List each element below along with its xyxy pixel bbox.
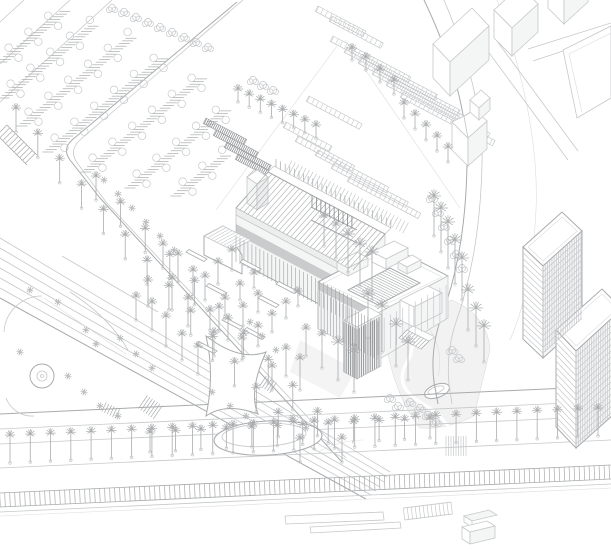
shrub (166, 28, 177, 36)
palm-tree (455, 251, 469, 301)
parking-row (125, 106, 232, 188)
fountain-mid (37, 371, 47, 381)
palm-tree (140, 223, 150, 253)
palm-tree (45, 428, 55, 462)
hatch-band (0, 465, 611, 507)
bench (206, 284, 227, 296)
site-plan-canvas (0, 0, 611, 550)
parking-row (43, 54, 170, 152)
palm-tree (238, 301, 248, 327)
palm-tree (281, 343, 291, 377)
road-topleft-2 (0, 0, 70, 64)
median-slab-2 (310, 522, 401, 533)
palm-tree (253, 289, 263, 313)
road-topleft-3 (0, 0, 112, 102)
palm-tree (244, 89, 254, 108)
star-tree (101, 177, 108, 184)
teardrop-island (206, 336, 266, 416)
south-small-building (462, 510, 497, 544)
palm-tree (451, 410, 461, 444)
palm-tree (76, 179, 86, 209)
palm-tree (233, 84, 243, 103)
hatch-band (403, 502, 452, 520)
palm-tree (300, 115, 310, 134)
palm-tree (532, 406, 542, 440)
shrub (106, 4, 117, 12)
palm-tree (471, 409, 481, 443)
palm-tree (142, 255, 152, 285)
palm-tree (374, 416, 384, 442)
palm-tree (106, 425, 116, 459)
median-slab-1 (285, 512, 384, 524)
shrub (247, 76, 258, 84)
boulevard-south-border-2 (0, 488, 611, 516)
palm-tree (193, 341, 203, 375)
east-lot (563, 26, 611, 118)
star-tree (27, 287, 34, 294)
block-c-face-r (564, 0, 588, 24)
palm-tree (281, 297, 291, 319)
planting-bed (283, 122, 332, 152)
palm-tree (432, 131, 442, 152)
star-tree (81, 389, 88, 396)
palm-tree (188, 265, 198, 297)
bench (222, 318, 243, 330)
palm-tree (131, 291, 141, 321)
palm-tree (126, 424, 136, 458)
palm-tree (288, 381, 298, 411)
shrub (426, 194, 437, 202)
shrub (267, 86, 278, 94)
shrub (142, 18, 153, 26)
palm-tree (145, 427, 155, 453)
palm-tree (120, 230, 130, 260)
shrub (202, 43, 213, 51)
fountain-outer (30, 364, 54, 388)
palm-tree (11, 103, 21, 133)
block-c-face-l (548, 0, 564, 24)
palm-tree (235, 279, 245, 301)
city-blocks (433, 0, 611, 544)
palm-tree (390, 412, 400, 446)
shrub (392, 402, 403, 410)
palm-tree (421, 120, 431, 141)
star-tree (83, 327, 90, 334)
palm-tree (370, 413, 380, 447)
palm-tree (161, 311, 171, 347)
star-tree (115, 413, 122, 420)
palm-tree (289, 110, 299, 129)
star-tree (157, 233, 164, 240)
palm-tree (410, 411, 420, 445)
palm-tree (410, 109, 420, 130)
palm-tree (255, 94, 265, 113)
star-tree (273, 347, 280, 354)
shrub (178, 33, 189, 41)
palm-tree (98, 205, 108, 235)
palm-tree (189, 276, 199, 306)
cross-street-1a (487, 50, 568, 160)
palm-tree (25, 429, 35, 463)
star-tree (129, 205, 136, 212)
star-tree (97, 403, 104, 410)
hatch-band (0, 125, 37, 165)
palm-tree (311, 120, 321, 139)
star-tree (17, 349, 24, 356)
shrub (450, 250, 461, 258)
palm-tree (491, 408, 501, 442)
palm-tree (187, 422, 197, 456)
palm-tree (329, 415, 339, 449)
plaza-arc-1 (4, 296, 42, 332)
palm-tree (277, 105, 287, 124)
palm-tree (66, 427, 76, 461)
palm-tree (186, 306, 196, 336)
palm-tree (54, 154, 64, 184)
boulevard-south-border-1 (0, 484, 611, 512)
palm-tree (389, 75, 399, 95)
palm-tree (512, 407, 522, 441)
road-topleft-1 (0, 0, 24, 22)
star-tree (247, 319, 254, 326)
planting-bed-dense (224, 142, 271, 171)
bench (258, 296, 279, 308)
palm-tree (5, 430, 15, 464)
planting-bed (315, 6, 366, 36)
star-tree (115, 191, 122, 198)
palm-tree (115, 197, 125, 227)
shrub (130, 13, 141, 21)
shrub (257, 81, 268, 89)
palm-tree (158, 239, 168, 269)
palm-tree (196, 424, 206, 450)
parking-inner-line (84, 12, 230, 136)
palm-tree (266, 99, 276, 118)
shrub (154, 23, 165, 31)
palm-tree (164, 281, 174, 311)
palm-tree (267, 309, 277, 333)
star-tree (65, 373, 72, 380)
parking-row (171, 146, 232, 196)
site-plan-drawing (0, 0, 611, 550)
shrub (118, 8, 129, 16)
fountain-center (41, 375, 44, 378)
avenue-lane-6 (0, 288, 371, 495)
palm-tree (399, 414, 409, 440)
palm-tree (86, 426, 96, 460)
